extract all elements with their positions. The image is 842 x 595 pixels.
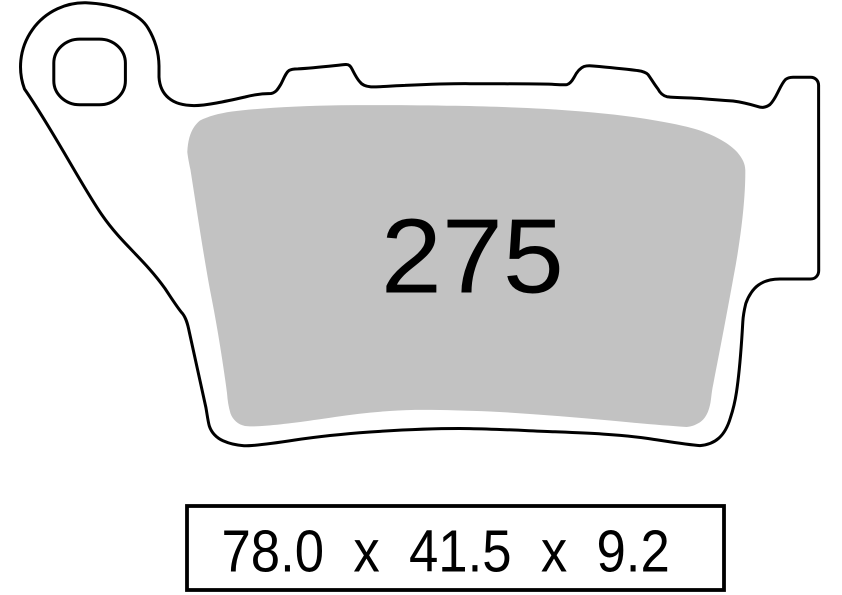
svg-text:275: 275 — [381, 198, 564, 316]
svg-text:78.0 x 41.5 x 9.2: 78.0 x 41.5 x 9.2 — [221, 518, 669, 585]
